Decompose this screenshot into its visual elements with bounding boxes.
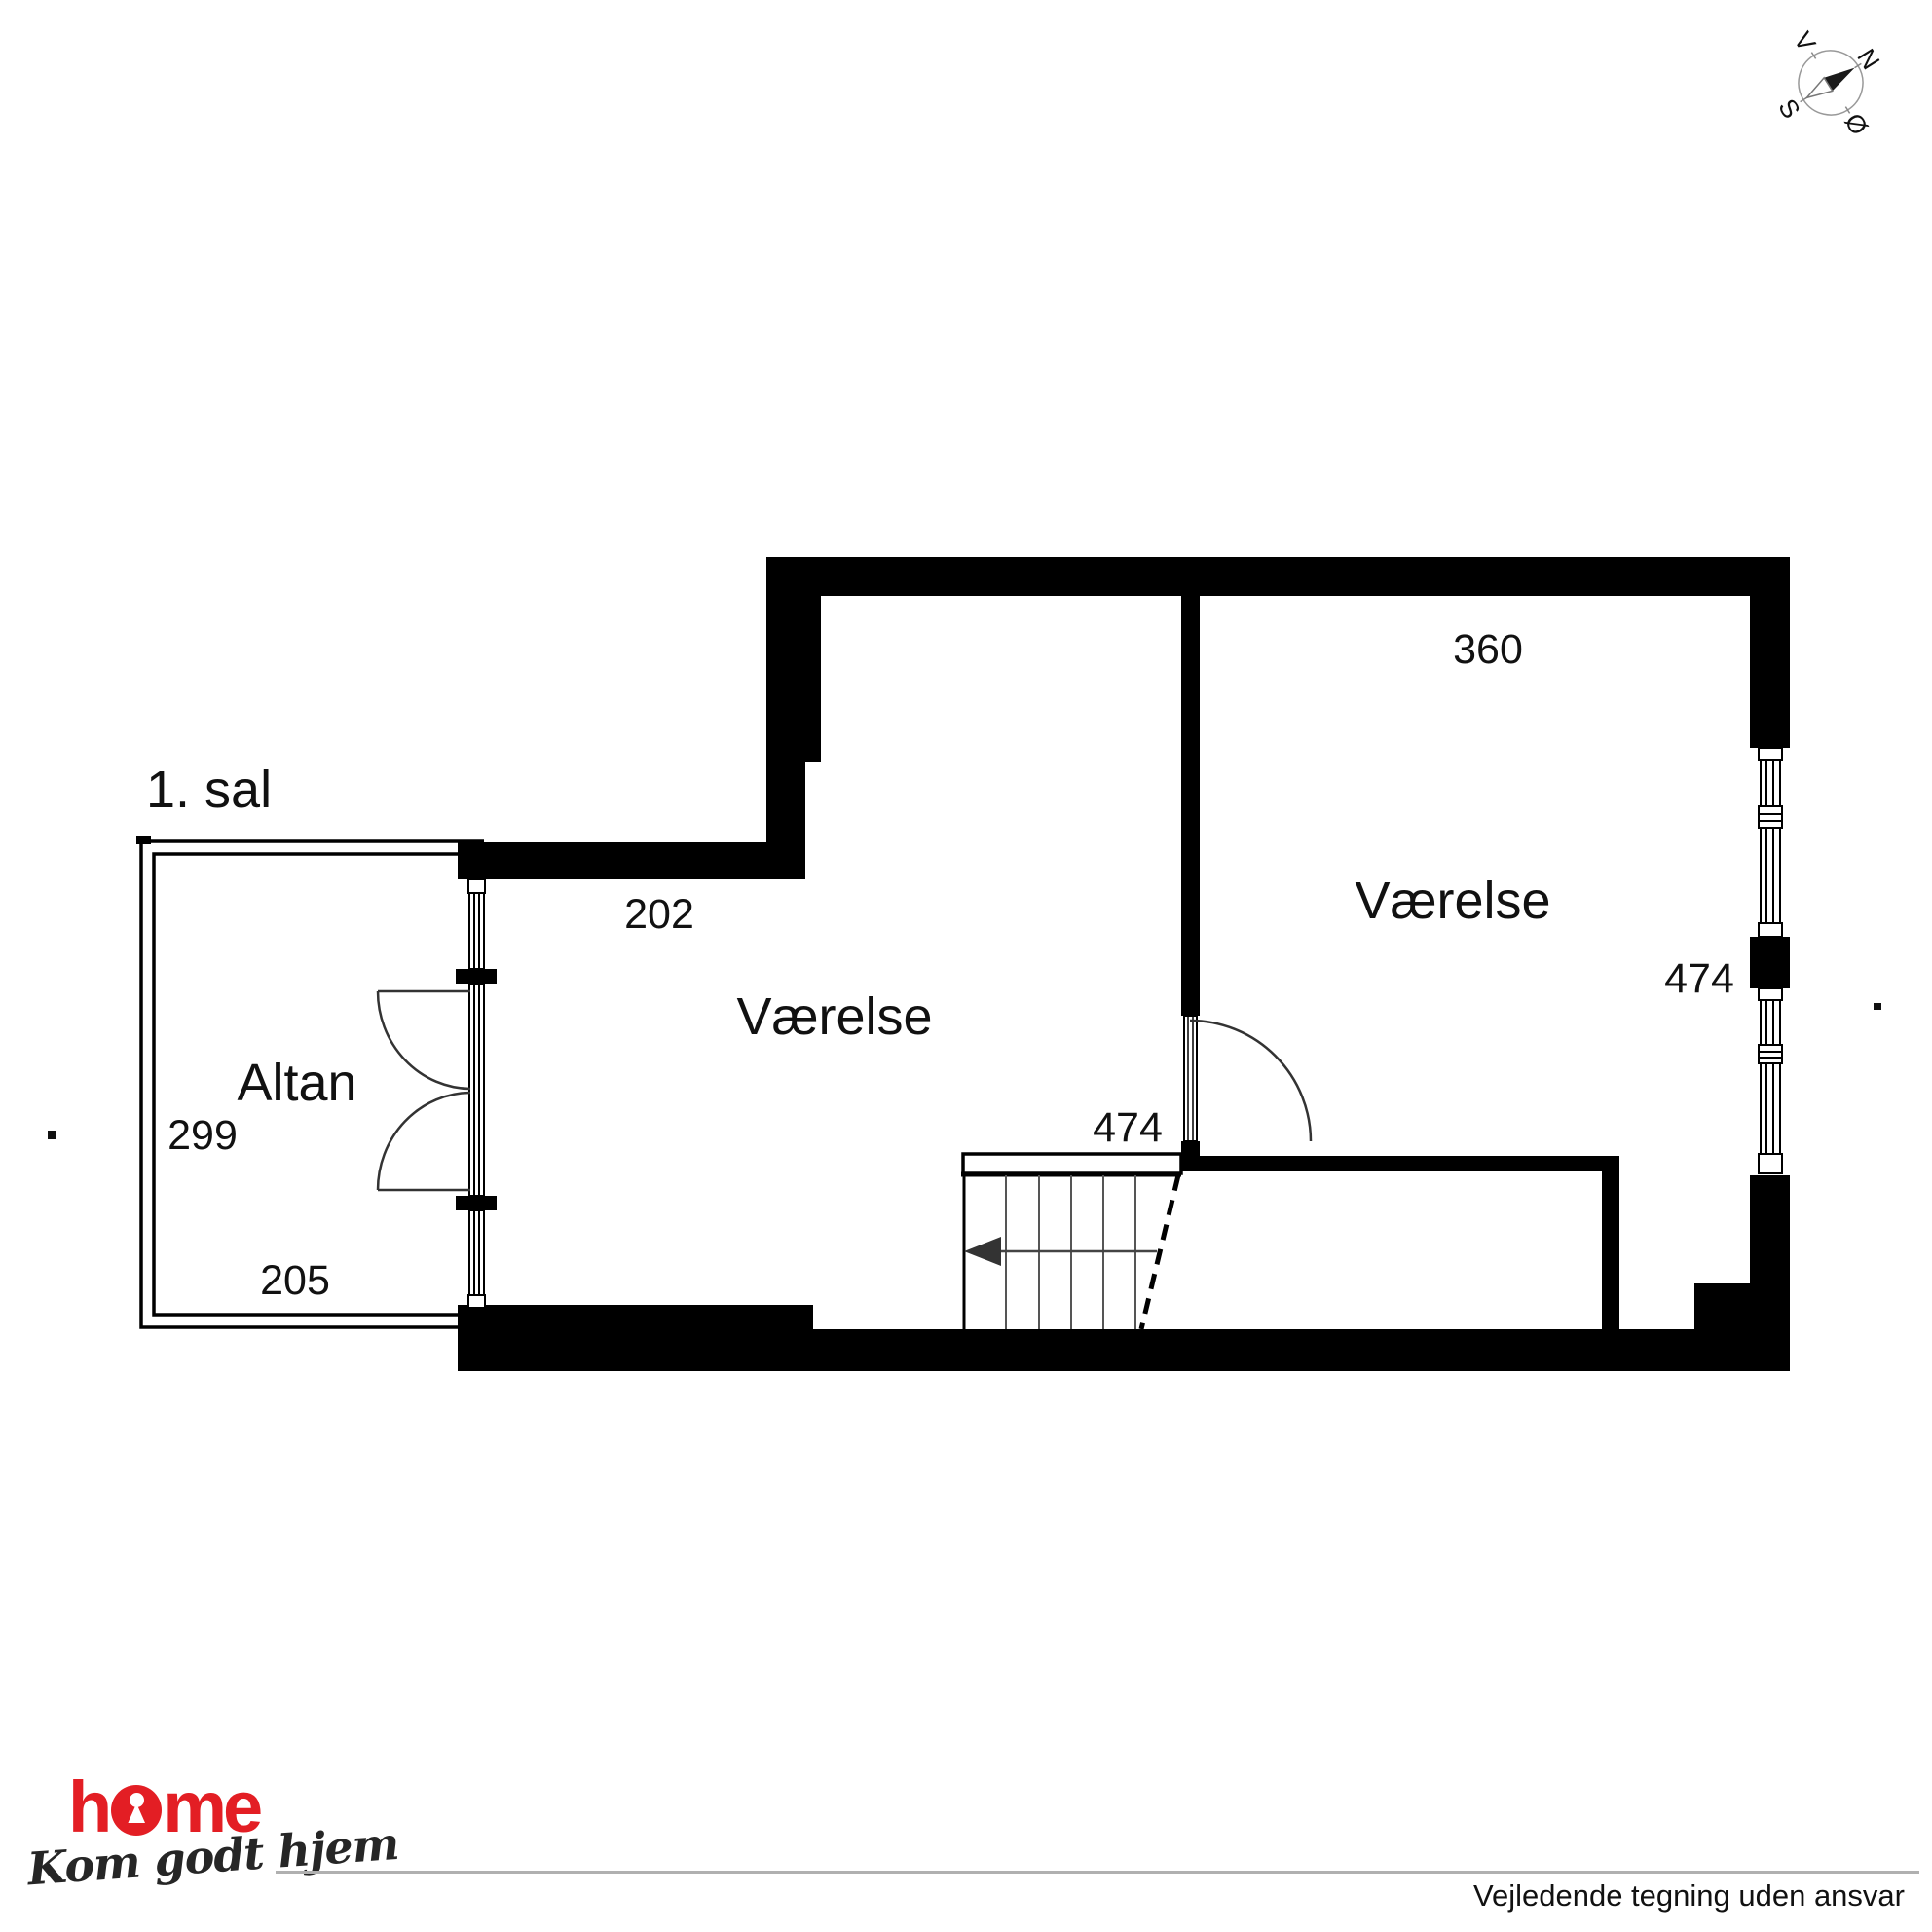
wall-left-upper-wide — [766, 596, 821, 762]
dimension-top: 360 — [1453, 626, 1523, 673]
wall-bottom-band — [813, 1329, 1790, 1371]
door-swing-bottom — [378, 1093, 470, 1190]
sill — [1759, 923, 1782, 937]
sill — [1759, 1154, 1782, 1173]
wall-stair-top — [1200, 1156, 1619, 1171]
wall-balcony-header — [458, 842, 805, 879]
compass-label-south: S — [1772, 93, 1806, 124]
window — [1761, 828, 1780, 923]
compass-label-west: V — [1788, 26, 1822, 56]
wall-right-top — [1750, 596, 1790, 748]
door-swing — [1190, 1021, 1311, 1141]
wall-stair-l-return — [1602, 1171, 1619, 1329]
door-frame-strip — [469, 984, 484, 1196]
dimension-center: 474 — [1093, 1104, 1163, 1151]
interior-door — [1184, 1016, 1311, 1141]
disclaimer-text: Vejledende tegning uden ansvar — [1473, 1878, 1905, 1913]
wall-partition-hinge-block — [1181, 1141, 1200, 1171]
compass-rose: N Ø S V — [1747, 3, 1913, 167]
wall-top — [766, 557, 1790, 596]
room-label-left: Værelse — [736, 987, 932, 1046]
plan-dot-left — [48, 1131, 56, 1139]
wall-right-bottom — [1750, 1175, 1790, 1371]
mullion-block-lower — [456, 1196, 497, 1210]
dimension-right: 474 — [1664, 955, 1734, 1002]
dimension-upper-left: 202 — [624, 891, 694, 938]
sill — [1759, 988, 1782, 1000]
window — [1761, 1000, 1780, 1045]
room-label-right: Værelse — [1355, 872, 1550, 930]
balcony-label: Altan — [237, 1054, 356, 1112]
window — [1761, 760, 1780, 806]
sill — [468, 1295, 485, 1308]
balcony-double-door — [378, 991, 470, 1190]
window — [469, 893, 484, 969]
window — [1761, 1063, 1780, 1154]
mullion-block-upper — [456, 969, 497, 984]
dimension-balcony-bottom: 205 — [260, 1257, 330, 1304]
sill — [1759, 748, 1782, 760]
logo-letter-h: h — [68, 1771, 108, 1843]
staircase — [961, 1154, 1181, 1329]
compass-label-north: N — [1851, 44, 1885, 75]
wall-partition — [1181, 596, 1200, 1016]
sill — [468, 879, 485, 893]
window — [469, 1210, 484, 1295]
wall-bottom-left-thick — [458, 1305, 813, 1371]
sash-break — [1759, 806, 1782, 828]
stair-landing — [963, 1154, 1181, 1173]
floor-plan-drawing: N Ø S V 1. sal Værelse Værelse Altan 360… — [0, 0, 1932, 1932]
stair-direction-arrow — [964, 1237, 1001, 1266]
windows-left-wall — [468, 879, 485, 1308]
logo-keyhole-o-icon — [111, 1785, 162, 1836]
floor-title: 1. sal — [146, 761, 272, 819]
door-leaf — [1184, 1016, 1197, 1141]
footer-divider-line — [276, 1871, 1919, 1874]
plan-dot-right — [1874, 1003, 1881, 1010]
wall-right-mid-block — [1750, 937, 1790, 988]
dimension-balcony-side: 299 — [167, 1112, 238, 1159]
compass-label-east: Ø — [1839, 108, 1874, 140]
door-swing-top — [378, 991, 470, 1089]
floorplan-page: N Ø S V 1. sal Værelse Værelse Altan 360… — [0, 0, 1932, 1932]
sash-break — [1759, 1045, 1782, 1063]
